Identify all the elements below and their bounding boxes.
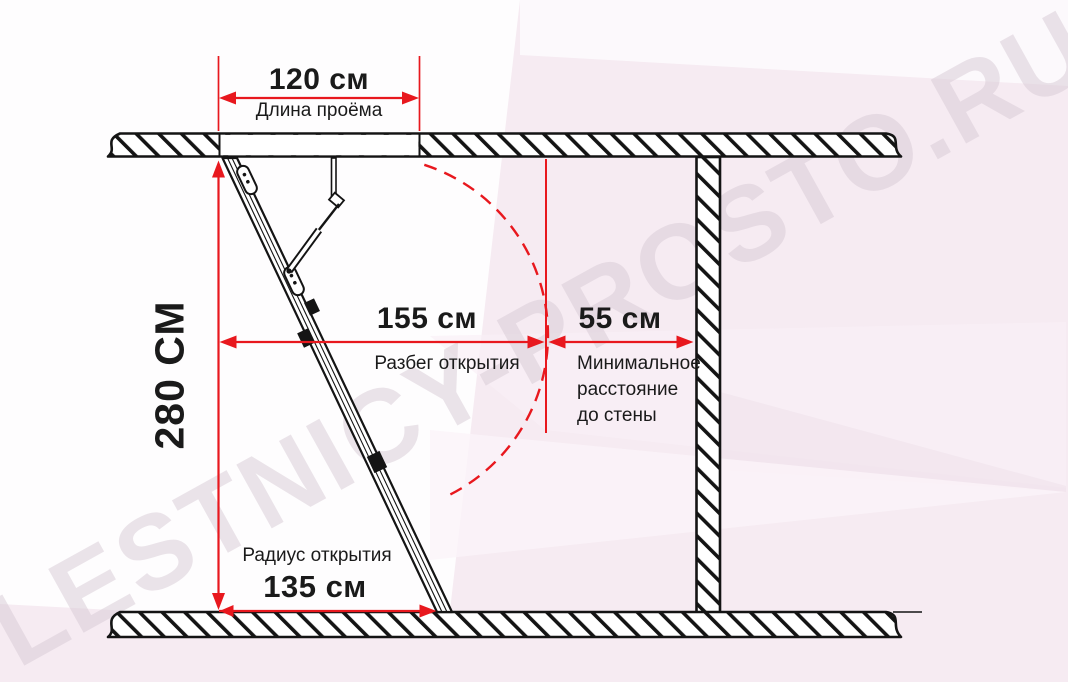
floor-slab — [108, 612, 922, 637]
ceiling-slab — [108, 134, 901, 157]
wall-distance-label-line3: до стены — [577, 403, 737, 429]
opening-radius-value: 135 см — [230, 569, 400, 605]
wall-distance-label-line1: Минимальное — [577, 351, 737, 377]
opening-run-label: Разбег открытия — [347, 351, 547, 377]
wall-distance-value: 55 см — [540, 302, 700, 336]
opening-radius-label: Радиус открытия — [237, 543, 397, 569]
wall-distance-label-line2: расстояние — [577, 377, 737, 403]
opening-run-value: 155 см — [337, 302, 517, 336]
ceiling-height-value: 280 СМ — [147, 300, 194, 449]
ladder-dimension-diagram: LESTNICY-PROSTO.RU — [0, 0, 1068, 682]
opening-length-label: Длина проёма — [218, 98, 420, 124]
opening-length-value: 120 см — [218, 63, 420, 97]
wall-distance-label: Минимальное расстояние до стены — [577, 351, 737, 429]
ceiling-opening — [220, 134, 420, 157]
